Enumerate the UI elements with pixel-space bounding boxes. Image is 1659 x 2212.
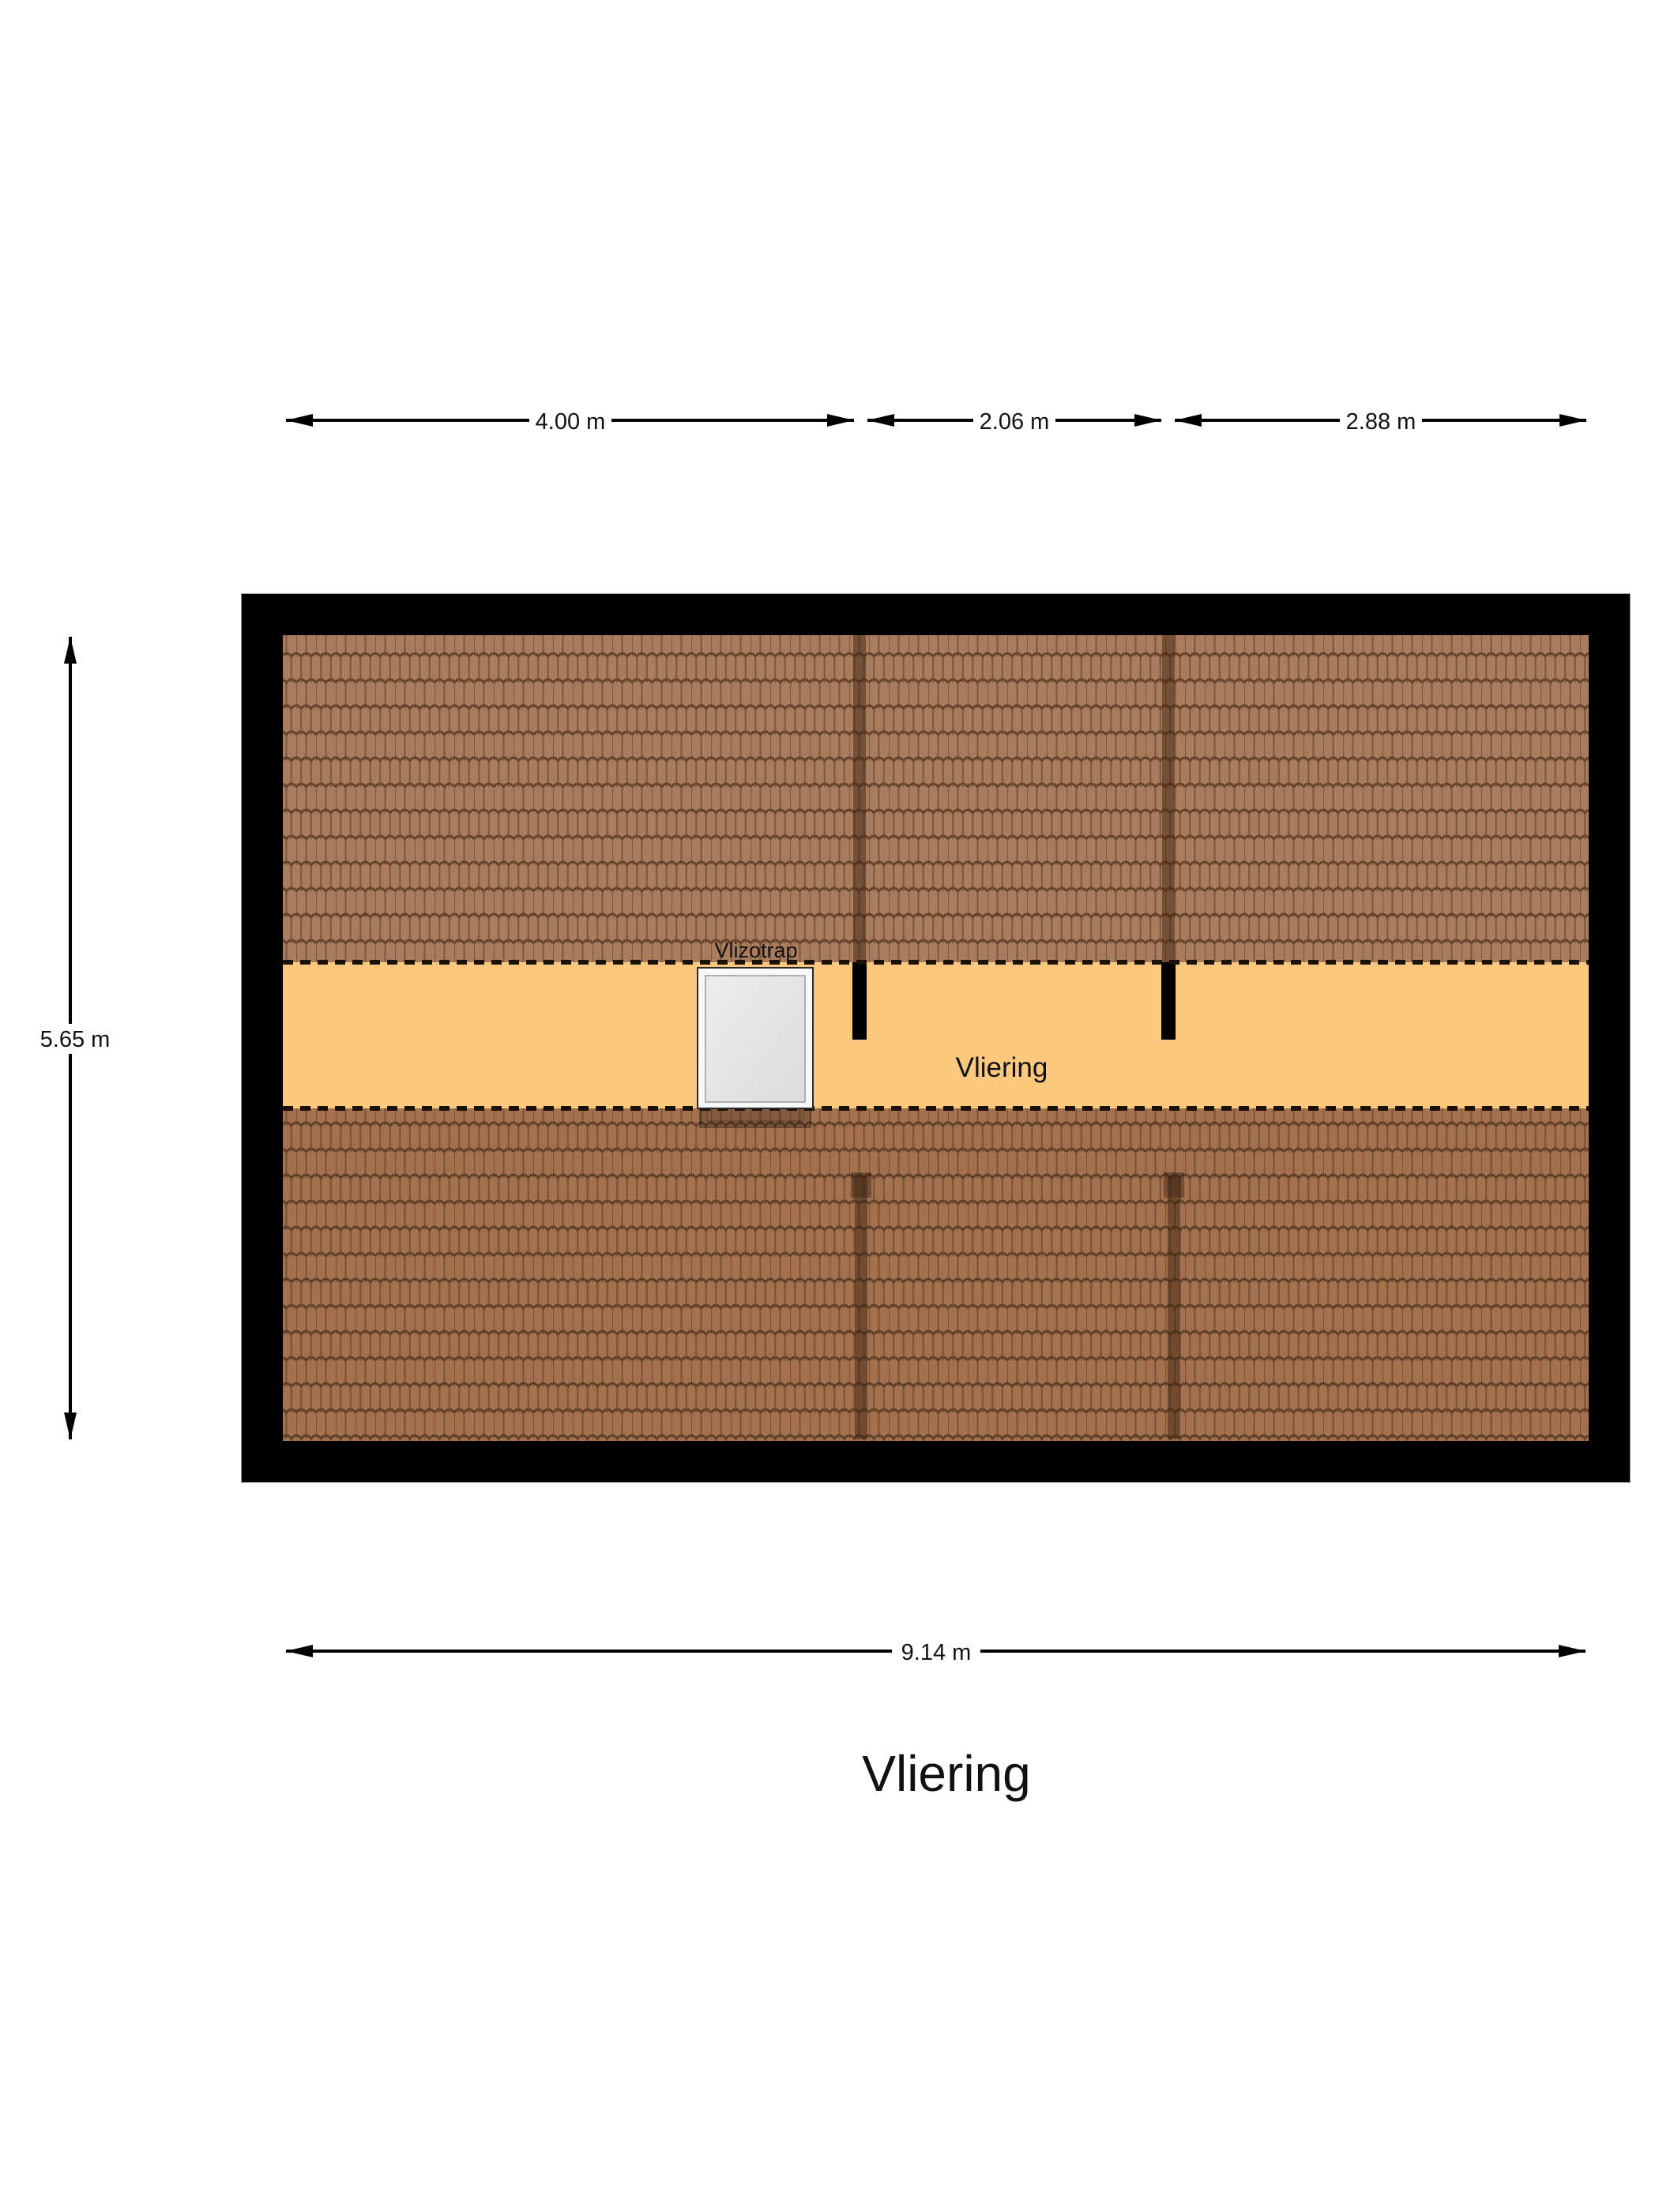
roof-plane-top	[283, 635, 1589, 962]
roof-seam-bottom-left	[855, 1176, 867, 1439]
room-label-vliering: Vliering	[956, 1052, 1048, 1083]
attic-floorplan: Vlizotrap Vliering	[242, 594, 1630, 1482]
wall-stub-right	[1161, 962, 1176, 1040]
vlizotrap-hatch-panel	[705, 976, 805, 1102]
top-dimensions: 4.00 m 2.06 m 2.88 m	[286, 406, 1586, 434]
vlizotrap-shadow	[700, 1108, 811, 1127]
dimension-label-5-65m: 5.65 m	[40, 1027, 111, 1052]
wall-stub-left	[852, 962, 867, 1040]
dimension-label-2-06m: 2.06 m	[980, 409, 1050, 434]
dimension-label-2-88m: 2.88 m	[1346, 409, 1416, 434]
vlizotrap-label: Vlizotrap	[714, 939, 797, 962]
roof-plane-bottom	[283, 1108, 1589, 1441]
vliering-floor	[283, 962, 1589, 1108]
roof-seam-top-left	[853, 635, 866, 962]
bottom-dimension: 9.14 m	[286, 1637, 1586, 1667]
floorplan-canvas: 4.00 m 2.06 m 2.88 m 5.65 m	[0, 0, 1659, 2212]
dimension-label-9-14m: 9.14 m	[901, 1640, 972, 1665]
plan-title: Vliering	[862, 1745, 1030, 1802]
dimension-label-4m: 4.00 m	[536, 409, 606, 434]
roof-seam-top-right	[1162, 635, 1175, 962]
left-dimension: 5.65 m	[28, 637, 122, 1439]
roof-seam-bottom-right	[1168, 1176, 1180, 1439]
